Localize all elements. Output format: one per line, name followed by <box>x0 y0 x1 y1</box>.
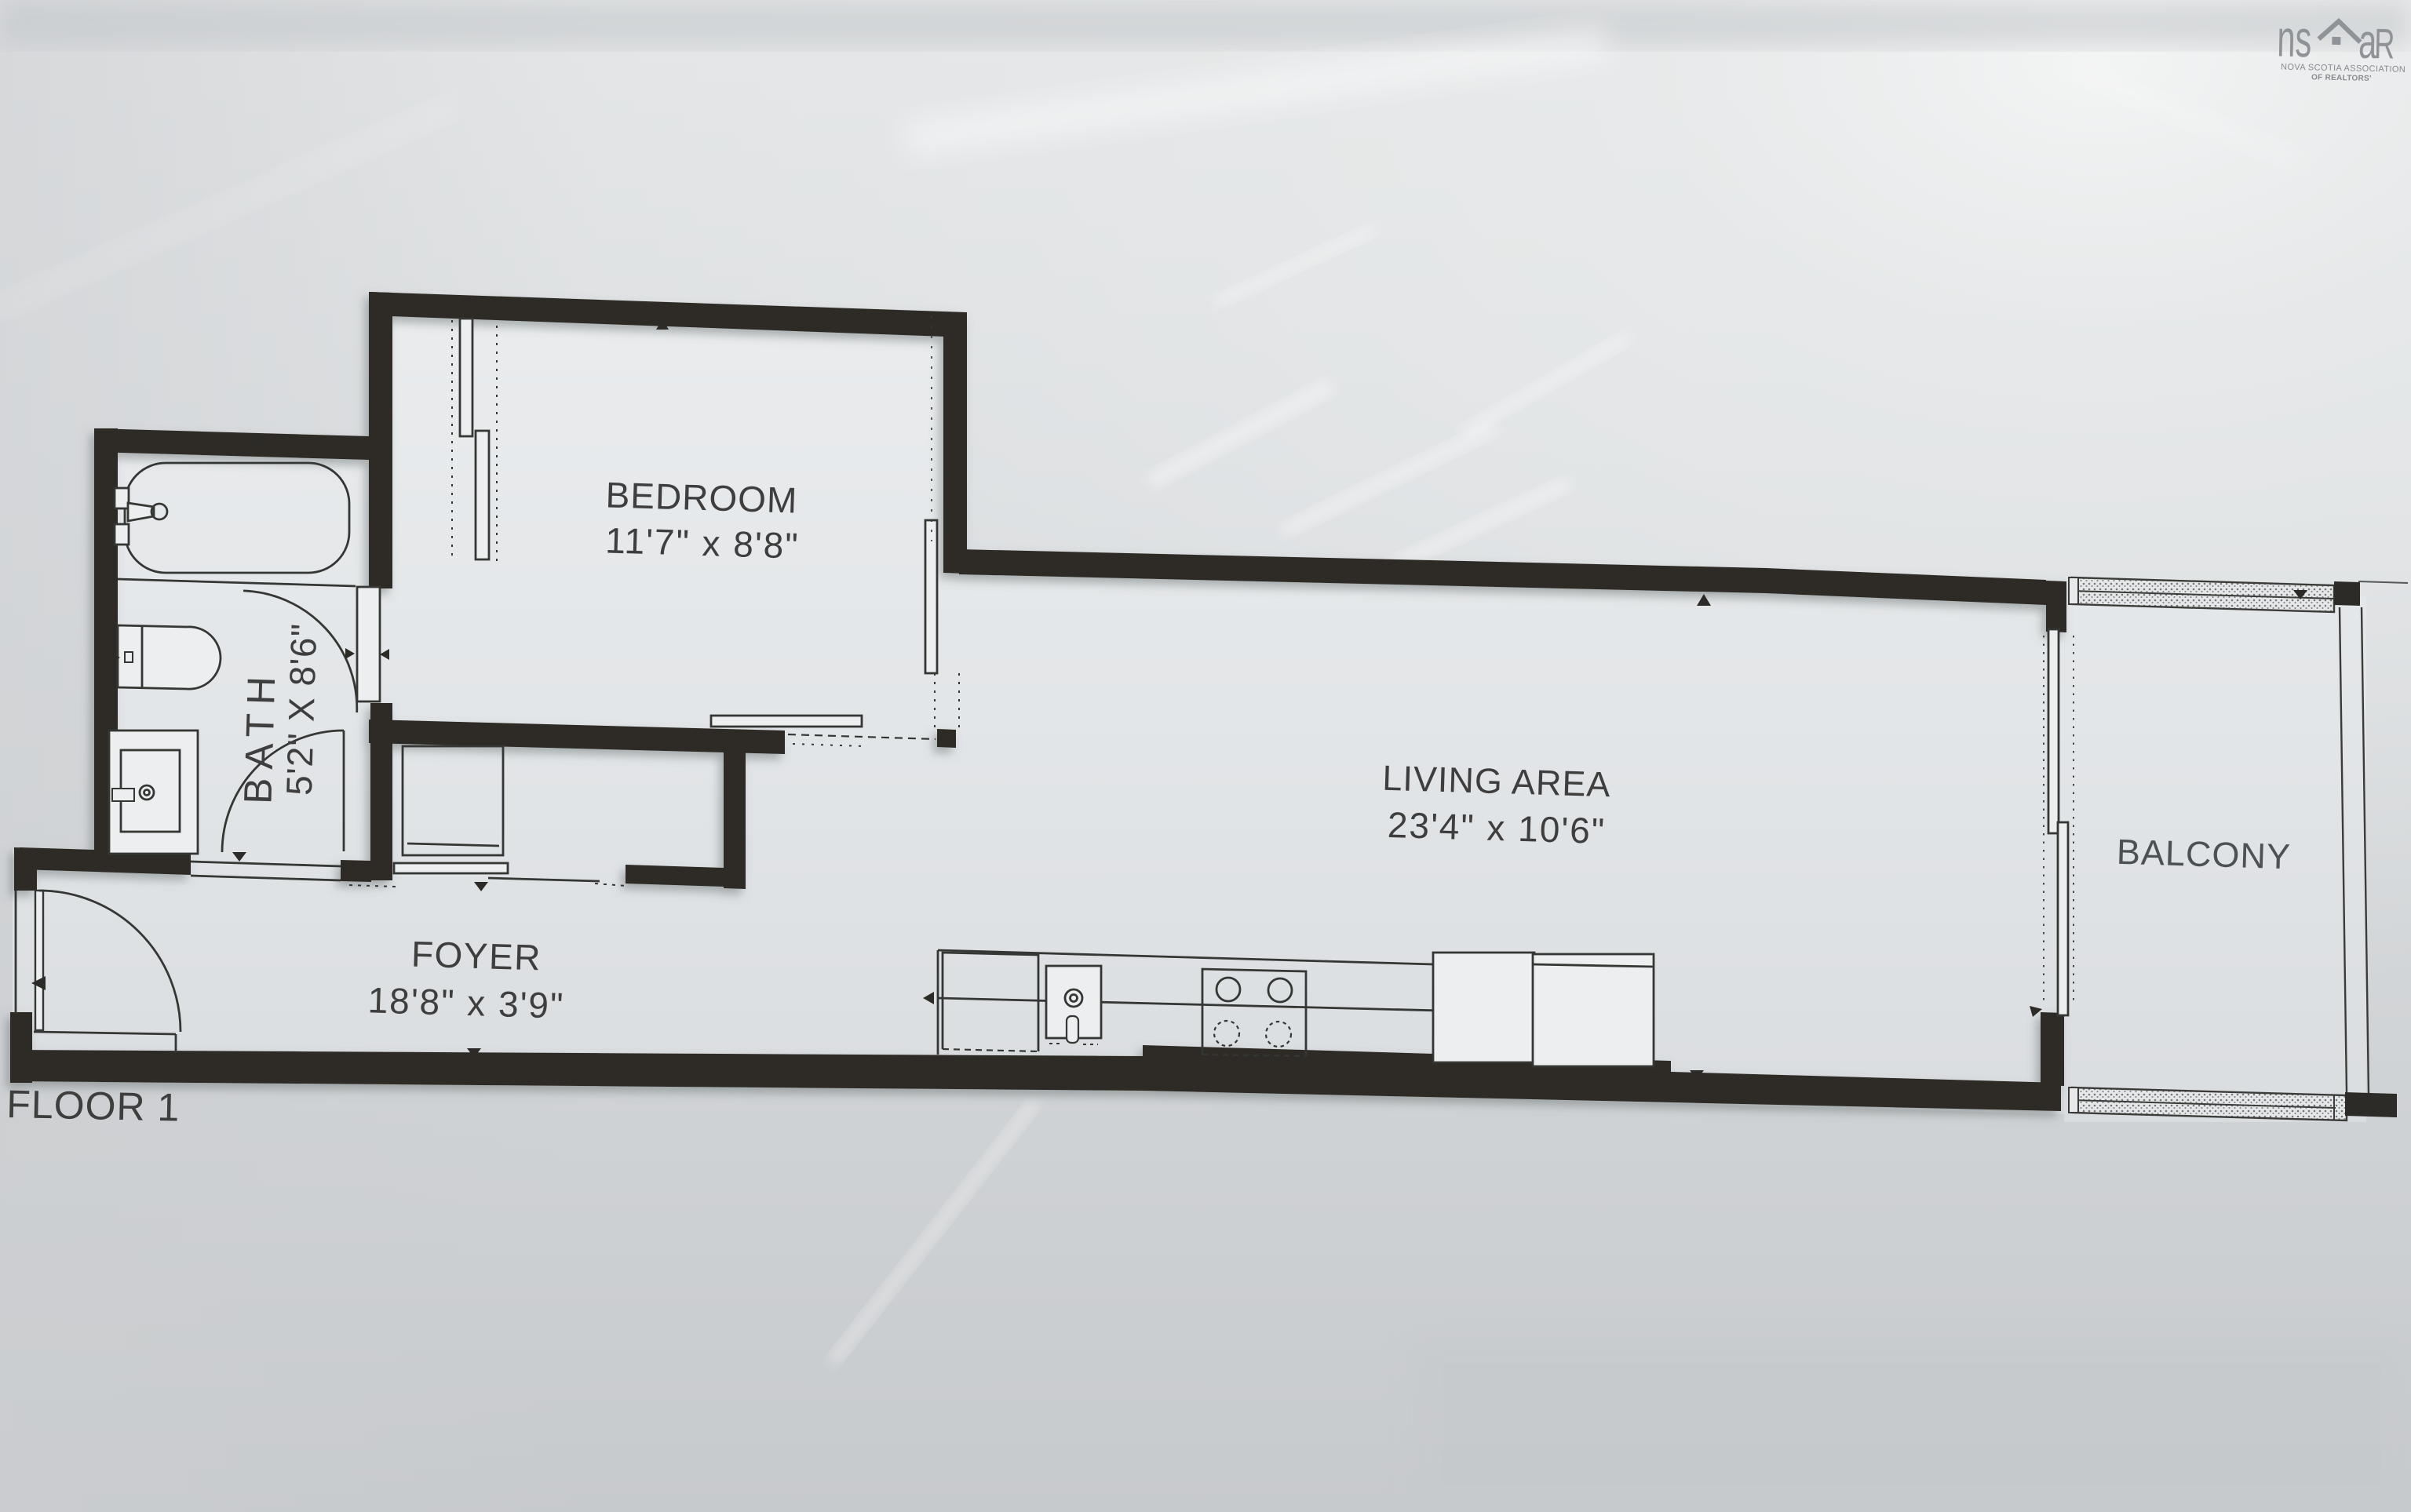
svg-text:18'8" x 3'9": 18'8" x 3'9" <box>367 979 565 1026</box>
svg-text:FLOOR 1: FLOOR 1 <box>6 1082 181 1130</box>
svg-text:R: R <box>2374 20 2395 68</box>
svg-text:5'2" X 8'6": 5'2" X 8'6" <box>279 622 324 796</box>
svg-text:11'7" x 8'8": 11'7" x 8'8" <box>605 519 801 566</box>
svg-text:BALCONY: BALCONY <box>2116 832 2291 877</box>
svg-text:OF REALTORS': OF REALTORS' <box>2311 73 2372 83</box>
svg-text:ns: ns <box>2277 9 2313 67</box>
svg-text:BATH: BATH <box>235 667 283 804</box>
svg-text:FOYER: FOYER <box>410 934 542 978</box>
svg-text:BEDROOM: BEDROOM <box>605 474 798 520</box>
svg-text:LIVING AREA: LIVING AREA <box>1382 758 1611 805</box>
svg-text:23'4" x 10'6": 23'4" x 10'6" <box>1387 804 1607 851</box>
